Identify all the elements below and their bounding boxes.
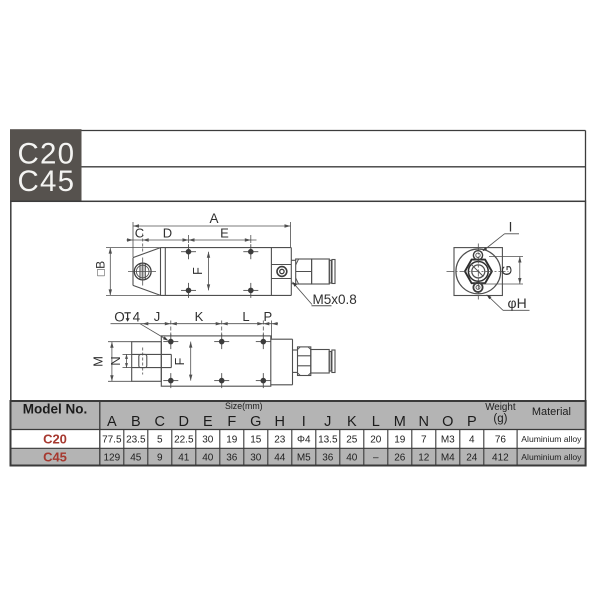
svg-text:7: 7 [421, 435, 427, 446]
svg-text:Model No.: Model No. [23, 402, 88, 417]
svg-text:76: 76 [495, 435, 507, 446]
svg-text:O: O [114, 310, 125, 325]
svg-text:(g): (g) [493, 413, 507, 425]
svg-text:23.5: 23.5 [126, 435, 146, 446]
svg-text:P: P [467, 414, 477, 430]
svg-text:M: M [394, 414, 406, 430]
svg-text:13.5: 13.5 [318, 435, 338, 446]
svg-text:19: 19 [394, 435, 406, 446]
svg-text:B: B [131, 414, 141, 430]
svg-text:40: 40 [202, 453, 214, 464]
svg-text:Aluminium alloy: Aluminium alloy [521, 452, 582, 462]
svg-text:M5: M5 [297, 453, 311, 464]
svg-text:M4: M4 [441, 453, 455, 464]
svg-text:P: P [263, 309, 272, 324]
svg-text:25: 25 [346, 435, 358, 446]
svg-text:J: J [154, 309, 161, 324]
svg-text:L: L [372, 414, 380, 430]
svg-text:I: I [509, 220, 513, 235]
svg-text:C: C [135, 226, 144, 241]
svg-text:φH: φH [508, 295, 527, 311]
svg-text:4: 4 [133, 310, 141, 325]
svg-text:36: 36 [226, 453, 238, 464]
svg-text:C45: C45 [43, 449, 67, 464]
svg-text:F: F [173, 357, 187, 365]
svg-text:J: J [324, 414, 331, 430]
svg-text:12: 12 [418, 453, 430, 464]
svg-text:20: 20 [370, 435, 382, 446]
svg-text:F: F [191, 267, 205, 275]
svg-text:30: 30 [250, 453, 262, 464]
svg-text:45: 45 [130, 453, 142, 464]
svg-text:K: K [195, 309, 204, 324]
svg-text:77.5: 77.5 [102, 435, 122, 446]
svg-text:22.5: 22.5 [174, 435, 194, 446]
svg-text:4: 4 [469, 435, 475, 446]
svg-text:F: F [227, 414, 236, 430]
svg-text:E: E [220, 226, 229, 241]
svg-text:D: D [163, 226, 172, 241]
svg-text:C45: C45 [18, 165, 76, 198]
svg-text:40: 40 [346, 453, 358, 464]
svg-text:G: G [250, 414, 261, 430]
svg-text:L: L [242, 309, 249, 324]
svg-text:Size(mm): Size(mm) [225, 401, 263, 411]
svg-text:O: O [442, 414, 453, 430]
svg-text:26: 26 [394, 453, 406, 464]
svg-text:30: 30 [202, 435, 214, 446]
svg-text:24: 24 [466, 453, 478, 464]
svg-text:–: – [373, 453, 379, 464]
svg-text:□B: □B [94, 261, 108, 276]
svg-text:N: N [108, 356, 123, 365]
svg-text:H: H [275, 414, 285, 430]
svg-text:A: A [107, 414, 117, 430]
svg-text:Aluminium alloy: Aluminium alloy [521, 434, 582, 444]
svg-text:M: M [91, 356, 106, 367]
svg-text:15: 15 [250, 435, 262, 446]
svg-text:36: 36 [322, 453, 334, 464]
svg-text:44: 44 [274, 453, 286, 464]
svg-text:19: 19 [226, 435, 238, 446]
svg-text:41: 41 [178, 453, 190, 464]
svg-text:A: A [209, 211, 218, 226]
svg-text:Weight: Weight [485, 402, 516, 413]
svg-text:I: I [302, 414, 306, 430]
svg-text:M3: M3 [441, 435, 455, 446]
svg-text:G: G [500, 265, 515, 276]
svg-text:129: 129 [103, 453, 120, 464]
svg-text:M5x0.8: M5x0.8 [313, 292, 357, 307]
svg-text:Φ4: Φ4 [297, 435, 311, 446]
svg-text:412: 412 [492, 453, 509, 464]
svg-text:23: 23 [274, 435, 286, 446]
svg-text:C: C [155, 414, 165, 430]
svg-text:9: 9 [157, 453, 163, 464]
svg-text:N: N [419, 414, 429, 430]
svg-text:D: D [179, 414, 189, 430]
svg-text:E: E [203, 414, 213, 430]
svg-text:Material: Material [532, 406, 571, 418]
svg-text:C20: C20 [43, 432, 67, 447]
svg-text:K: K [347, 414, 357, 430]
svg-text:5: 5 [157, 435, 163, 446]
